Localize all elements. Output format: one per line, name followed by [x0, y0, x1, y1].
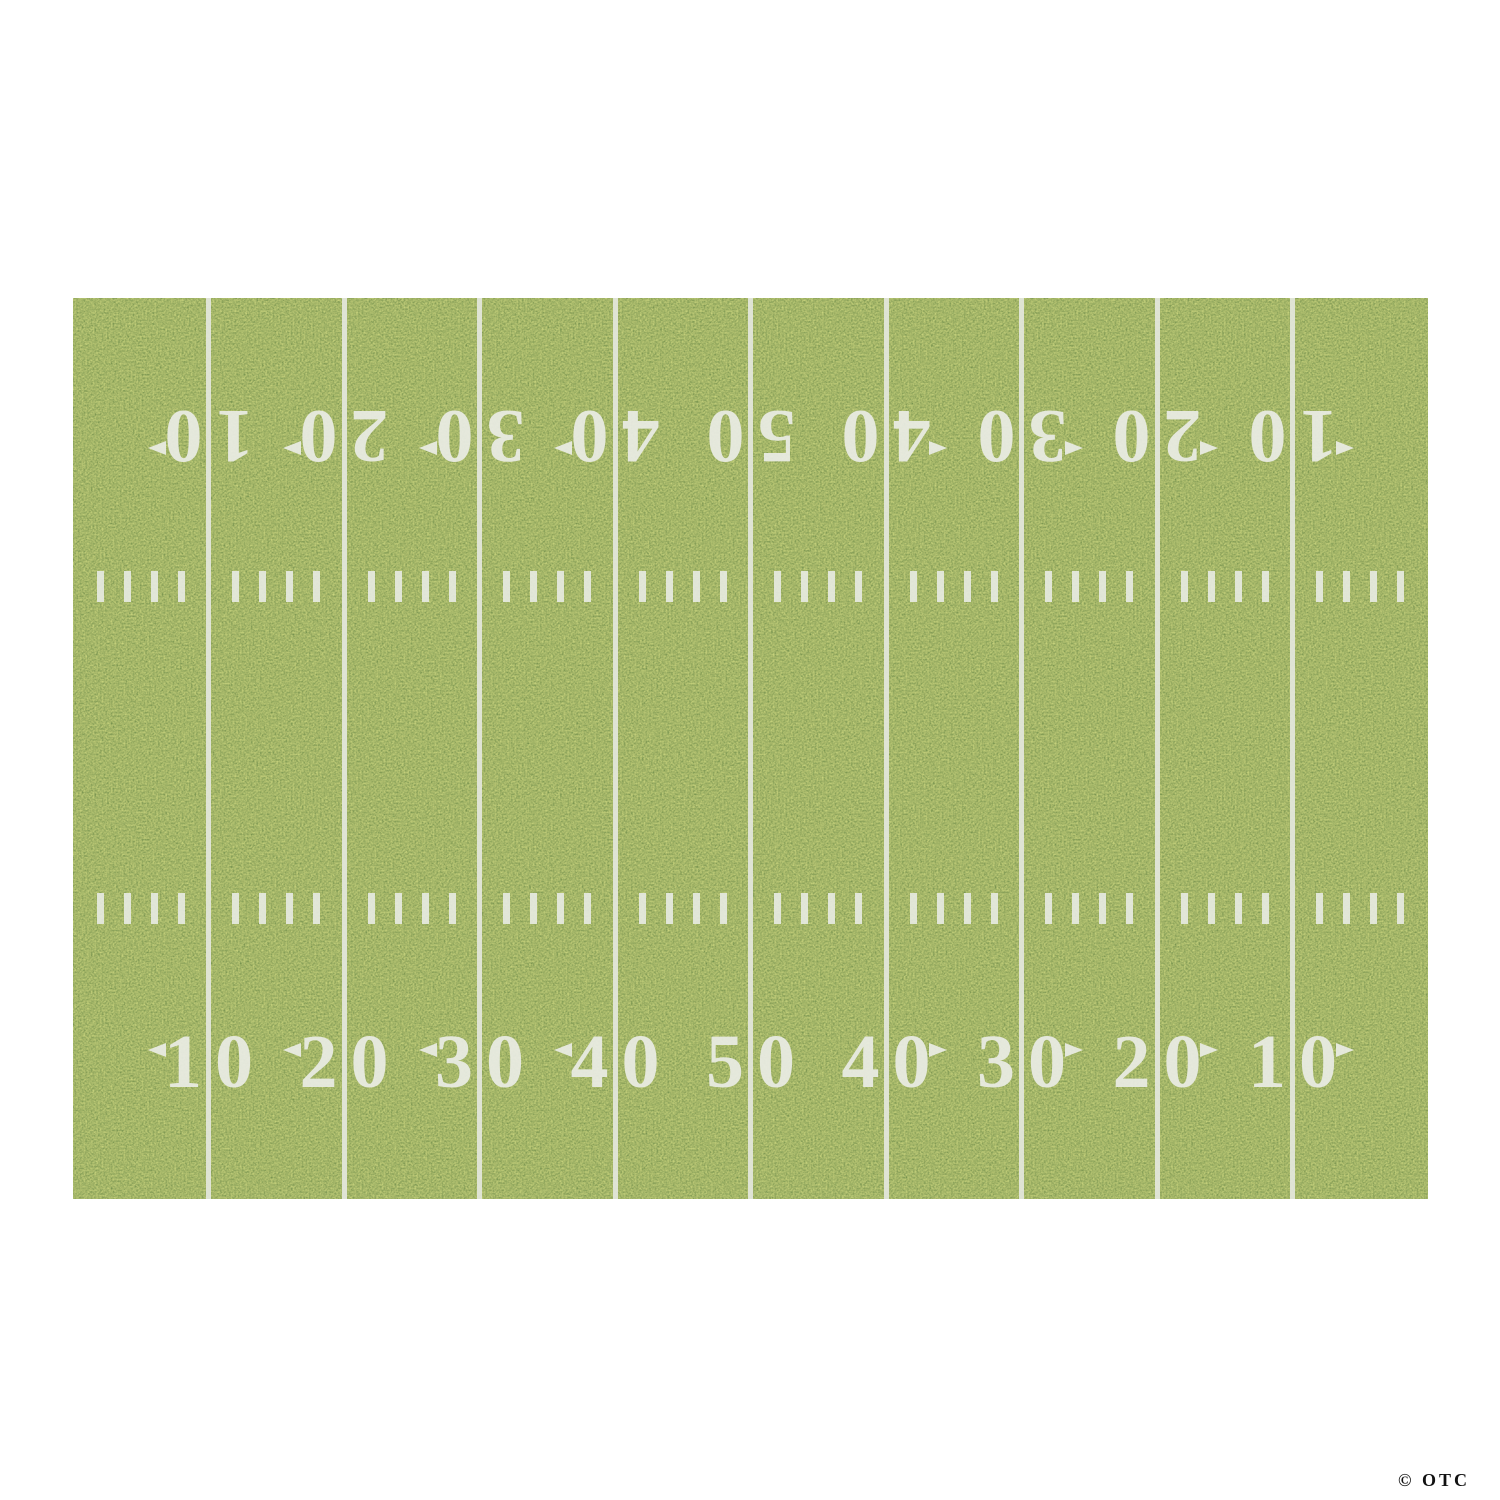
hash-mark: [801, 893, 808, 924]
hash-mark: [1235, 893, 1242, 924]
hash-mark: [313, 893, 320, 924]
yard-number-digit: 0: [1113, 407, 1151, 479]
hash-mark: [530, 893, 537, 924]
hash-mark: [855, 571, 862, 602]
yard-number-digit: 0: [622, 1019, 660, 1091]
hash-mark: [395, 571, 402, 602]
football-field: 102030405040302010102030405040302010: [73, 298, 1428, 1199]
yard-number-digit: 4: [893, 407, 931, 479]
hash-mark: [774, 893, 781, 924]
hash-mark: [720, 571, 727, 602]
hash-mark: [286, 893, 293, 924]
yard-number-digit: 0: [1164, 1019, 1202, 1091]
yard-number-digit: 2: [1164, 407, 1202, 479]
yard-number-digit: 0: [977, 407, 1015, 479]
hash-mark: [422, 893, 429, 924]
yard-number-digit: 2: [351, 407, 389, 479]
hash-mark: [720, 893, 727, 924]
yard-number-digit: 0: [435, 407, 473, 479]
yard-number-digit: 0: [215, 1019, 253, 1091]
yard-number-digit: 0: [351, 1019, 389, 1091]
yard-number-digit: 3: [1028, 407, 1066, 479]
yard-number-digit: 2: [1113, 1019, 1151, 1091]
hash-mark: [937, 571, 944, 602]
hash-mark: [1208, 893, 1215, 924]
hash-mark: [395, 893, 402, 924]
hash-mark: [530, 571, 537, 602]
hash-mark: [991, 571, 998, 602]
hash-mark: [1072, 893, 1079, 924]
hash-mark: [666, 893, 673, 924]
hash-mark: [1099, 571, 1106, 602]
hash-mark: [964, 893, 971, 924]
hash-mark: [828, 571, 835, 602]
hash-mark: [910, 571, 917, 602]
hash-mark: [151, 893, 158, 924]
hash-mark: [801, 571, 808, 602]
hash-mark: [259, 571, 266, 602]
yard-number-digit: 0: [842, 407, 880, 479]
hash-mark: [178, 571, 185, 602]
hash-mark: [151, 571, 158, 602]
yard-number-digit: 1: [164, 1019, 202, 1091]
yard-number-digit: 1: [1248, 1019, 1286, 1091]
watermark-copyright: © OTC: [1398, 1470, 1470, 1491]
hash-mark: [666, 571, 673, 602]
hash-mark: [1208, 571, 1215, 602]
hash-mark: [368, 893, 375, 924]
hash-mark: [774, 571, 781, 602]
yard-number-digit: 1: [215, 407, 253, 479]
hash-mark: [503, 571, 510, 602]
hash-mark: [1316, 571, 1323, 602]
yard-number-digit: 4: [571, 1019, 609, 1091]
yard-number-digit: 0: [706, 407, 744, 479]
hash-mark: [1343, 893, 1350, 924]
yard-number-digit: 0: [1299, 1019, 1337, 1091]
hash-mark: [1181, 571, 1188, 602]
hash-mark: [422, 571, 429, 602]
hash-mark: [991, 893, 998, 924]
hash-mark: [1235, 571, 1242, 602]
hash-mark: [639, 571, 646, 602]
hash-mark: [449, 893, 456, 924]
hash-mark: [368, 571, 375, 602]
hash-mark: [1370, 571, 1377, 602]
hash-mark: [937, 893, 944, 924]
hash-mark: [1262, 571, 1269, 602]
hash-mark: [97, 571, 104, 602]
hash-mark: [1045, 893, 1052, 924]
yard-number-digit: 0: [164, 407, 202, 479]
hash-mark: [97, 893, 104, 924]
yard-number-digit: 2: [300, 1019, 338, 1091]
hash-mark: [124, 571, 131, 602]
hash-mark: [1072, 571, 1079, 602]
hash-mark: [1099, 893, 1106, 924]
hash-mark: [232, 571, 239, 602]
hash-mark: [449, 571, 456, 602]
hash-mark: [557, 893, 564, 924]
hash-mark: [1181, 893, 1188, 924]
yard-number-digit: 5: [757, 407, 795, 479]
hash-mark: [124, 893, 131, 924]
hash-mark: [693, 893, 700, 924]
hash-mark: [259, 893, 266, 924]
hash-mark: [178, 893, 185, 924]
yard-number-digits: 10: [1208, 407, 1378, 479]
hash-mark: [1262, 893, 1269, 924]
hash-mark: [1126, 571, 1133, 602]
yard-number-digit: 0: [893, 1019, 931, 1091]
yard-number-digit: 3: [977, 1019, 1015, 1091]
yard-number-digit: 1: [1299, 407, 1337, 479]
hash-mark: [1397, 893, 1404, 924]
hash-mark: [1370, 893, 1377, 924]
yard-number-digit: 0: [757, 1019, 795, 1091]
product-image-canvas: 102030405040302010102030405040302010 © O…: [0, 0, 1500, 1500]
yard-number-top-9: 10: [1208, 407, 1378, 479]
yard-number-bottom-9: 10: [1208, 1019, 1378, 1091]
hash-mark: [1343, 571, 1350, 602]
hash-mark: [1316, 893, 1323, 924]
hash-mark: [286, 571, 293, 602]
yard-number-digit: 0: [571, 407, 609, 479]
hash-mark: [828, 893, 835, 924]
yard-number-digit: 0: [486, 1019, 524, 1091]
yard-number-digit: 4: [622, 407, 660, 479]
yard-number-digit: 3: [435, 1019, 473, 1091]
hash-mark: [503, 893, 510, 924]
yard-number-digit: 0: [300, 407, 338, 479]
hash-mark: [557, 571, 564, 602]
hash-mark: [693, 571, 700, 602]
yard-number-digit: 3: [486, 407, 524, 479]
yard-number-digit: 0: [1028, 1019, 1066, 1091]
hash-mark: [584, 893, 591, 924]
hash-mark: [1126, 893, 1133, 924]
yard-number-digit: 5: [706, 1019, 744, 1091]
hash-mark: [584, 571, 591, 602]
hash-mark: [910, 893, 917, 924]
yard-number-digit: 0: [1248, 407, 1286, 479]
hash-mark: [639, 893, 646, 924]
hash-mark: [1397, 571, 1404, 602]
yard-number-digits: 10: [1208, 1019, 1378, 1091]
hash-mark: [1045, 571, 1052, 602]
hash-mark: [855, 893, 862, 924]
yard-number-digit: 4: [842, 1019, 880, 1091]
hash-mark: [313, 571, 320, 602]
hash-mark: [964, 571, 971, 602]
hash-mark: [232, 893, 239, 924]
